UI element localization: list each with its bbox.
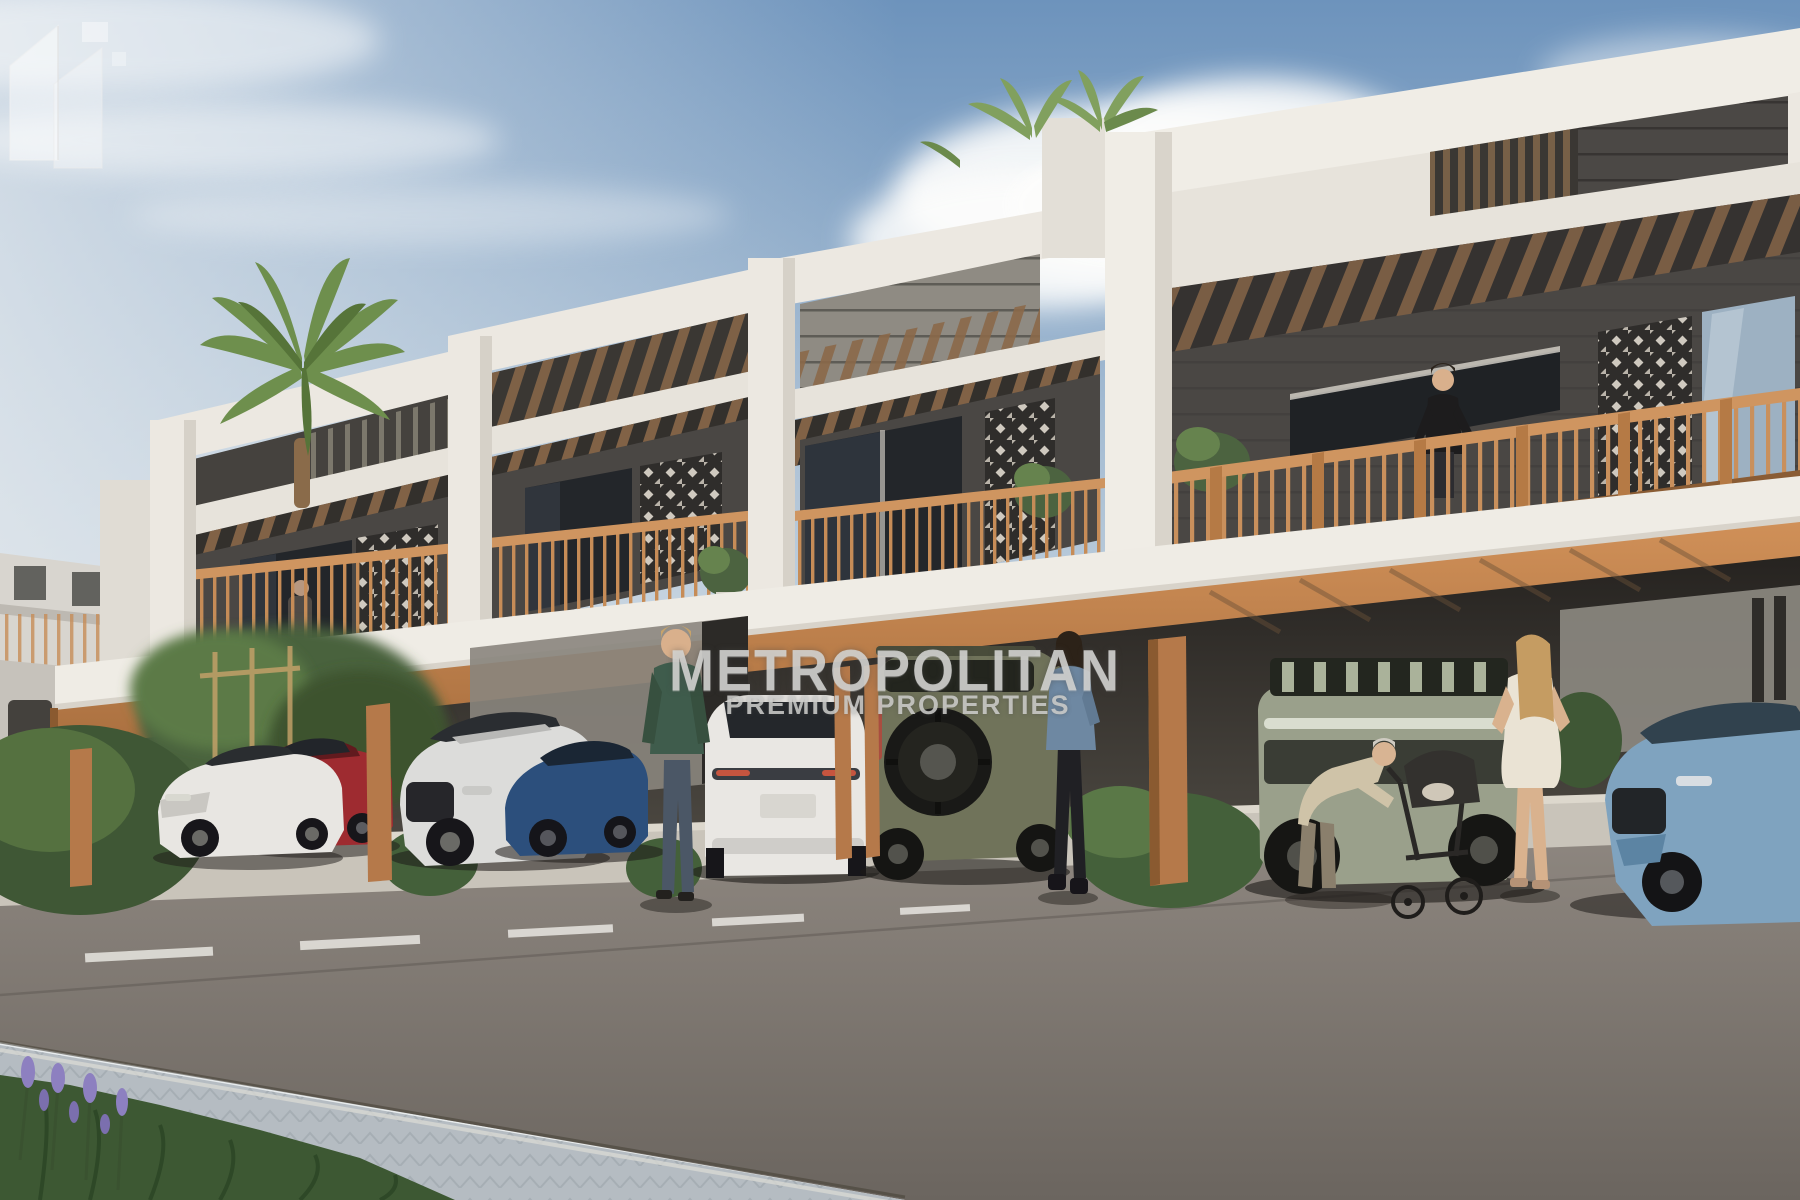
car-olive-suv-spare	[860, 646, 1070, 885]
pier-3	[748, 258, 795, 602]
rendering-photo: METROPOLITAN PREMIUM PROPERTIES	[0, 0, 1800, 1200]
pier-4	[1105, 132, 1172, 562]
scene-canvas	[0, 0, 1800, 1200]
pier-1	[150, 420, 196, 666]
roof-step-block	[1042, 118, 1105, 258]
pier-2	[448, 336, 492, 632]
car-sage-truck	[1245, 658, 1545, 903]
